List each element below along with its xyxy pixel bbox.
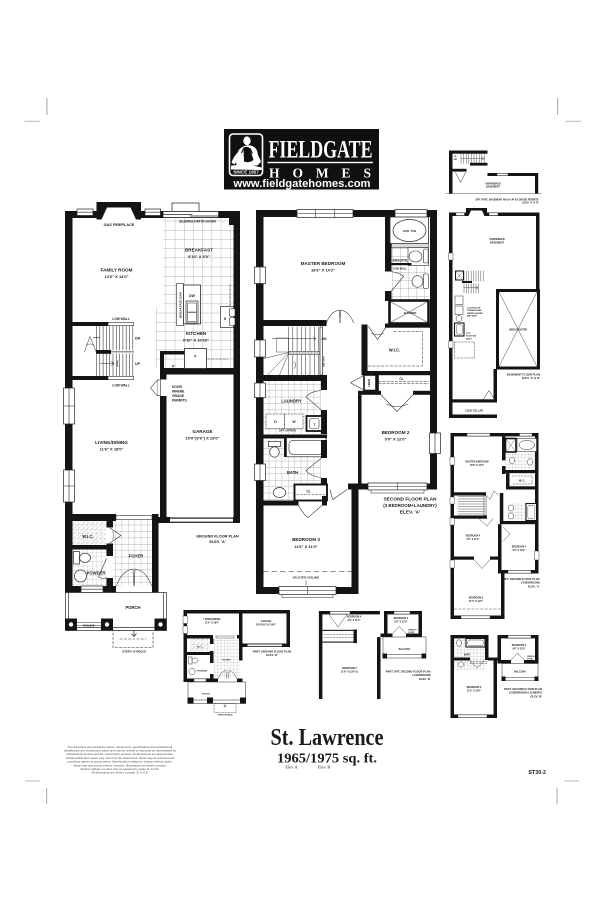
svg-text:GAS FIREPLACE: GAS FIREPLACE: [104, 223, 135, 227]
svg-text:MAY VARY: MAY VARY: [467, 315, 478, 318]
svg-text:www.fieldgatehomes.com: www.fieldgatehomes.com: [233, 178, 371, 190]
svg-text:All illustrations are Artist's: All illustrations are Artist's concept. …: [91, 771, 148, 775]
svg-text:ELEV. 'B': ELEV. 'B': [266, 653, 278, 657]
svg-text:SINCE 1957: SINCE 1957: [233, 170, 259, 175]
svg-text:BEDROOM 2: BEDROOM 2: [382, 430, 410, 435]
svg-text:PART. GROUND FLOOR PLAN: PART. GROUND FLOOR PLAN: [253, 650, 292, 654]
svg-text:W.I.C.: W.I.C.: [389, 348, 400, 353]
svg-text:SHOWER: SHOWER: [404, 311, 417, 315]
svg-text:10'0"(9'6") X 19'0": 10'0"(9'6") X 19'0": [256, 623, 276, 626]
svg-text:PORCH: PORCH: [202, 694, 210, 696]
svg-text:LINEN: LINEN: [367, 379, 371, 387]
svg-text:DOOR: DOOR: [527, 658, 533, 660]
svg-text:GRADE: GRADE: [172, 394, 185, 398]
svg-text:11'6" X 11'0": 11'6" X 11'0": [294, 544, 318, 549]
svg-text:UNEXCAVATED: UNEXCAVATED: [509, 329, 528, 332]
svg-text:ST30-2: ST30-2: [528, 770, 546, 776]
svg-text:Elev. A: Elev. A: [285, 765, 297, 770]
svg-text:STEPS IF REQ'D: STEPS IF REQ'D: [218, 715, 233, 717]
svg-text:11'6" X (13'0"±): 11'6" X (13'0"±): [341, 670, 358, 673]
svg-text:KITCHEN: KITCHEN: [186, 331, 207, 336]
svg-text:BASEMENT FLOOR PLAN: BASEMENT FLOOR PLAN: [507, 372, 540, 376]
svg-text:W.I.C.: W.I.C.: [82, 534, 93, 539]
svg-text:VAULTED CEILING: VAULTED CEILING: [293, 576, 320, 580]
svg-text:9'0" X 12'0": 9'0" X 12'0": [385, 437, 407, 442]
svg-text:FOYER: FOYER: [129, 554, 143, 559]
svg-text:9'0" X 11'0": 9'0" X 11'0": [467, 538, 480, 541]
svg-text:GROUND FLOOR PLAN: GROUND FLOOR PLAN: [196, 535, 239, 539]
svg-text:BASEMENT: BASEMENT: [490, 242, 505, 245]
svg-text:ROUGH-IN: ROUGH-IN: [466, 336, 477, 338]
svg-text:PORCH: PORCH: [125, 605, 140, 610]
svg-text:LIVING/DINING: LIVING/DINING: [95, 440, 128, 445]
svg-text:16'6" X 14'2": 16'6" X 14'2": [470, 464, 484, 467]
svg-text:OPT. SECOND FLOOR PLAN: OPT. SECOND FLOOR PLAN: [503, 577, 539, 581]
svg-text:RAILING: RAILING: [83, 624, 95, 628]
svg-text:BATH: BATH: [464, 654, 471, 657]
svg-text:STEPS IF REQ'D: STEPS IF REQ'D: [122, 650, 146, 654]
svg-text:BALCONY: BALCONY: [514, 671, 526, 674]
svg-text:CL: CL: [306, 489, 310, 493]
svg-text:SECOND FLOOR PLAN: SECOND FLOOR PLAN: [383, 497, 437, 503]
svg-text:POWDER: POWDER: [87, 571, 106, 576]
svg-text:POWDER: POWDER: [197, 671, 207, 673]
svg-text:DN: DN: [322, 337, 327, 341]
svg-text:11'6" X 13'0": 11'6" X 13'0": [467, 689, 481, 692]
svg-text:DOOR: DOOR: [409, 632, 415, 634]
svg-text:9'0" X 12'0": 9'0" X 12'0": [513, 647, 526, 650]
svg-text:11'6" X 18'0": 11'6" X 18'0": [100, 447, 124, 452]
svg-text:FIELDGATE: FIELDGATE: [269, 135, 373, 164]
svg-text:ELEV. 'A': ELEV. 'A': [209, 540, 225, 544]
svg-text:BREAKFAST BAR: BREAKFAST BAR: [179, 291, 183, 318]
svg-text:OVAL TUB: OVAL TUB: [403, 229, 417, 233]
svg-text:BEDROOM 3: BEDROOM 3: [292, 537, 320, 542]
svg-text:PART. OPT. SECOND FLOOR PLAN: PART. OPT. SECOND FLOOR PLAN: [386, 670, 431, 674]
svg-text:T: T: [314, 423, 316, 427]
svg-text:SLIDING PATIO DOOR: SLIDING PATIO DOOR: [179, 220, 216, 224]
svg-text:WATER HEATER: WATER HEATER: [467, 312, 483, 315]
svg-text:BATH: BATH: [287, 470, 298, 475]
svg-text:9'10" X 9'0": 9'10" X 9'0": [188, 254, 210, 259]
svg-text:LAUNDRY: LAUNDRY: [281, 399, 302, 404]
svg-text:ELEV. 'A': ELEV. 'A': [528, 584, 540, 588]
svg-text:GARAGE: GARAGE: [192, 429, 212, 434]
svg-text:ENSUITE: ENSUITE: [393, 259, 408, 263]
svg-text:MASTER BEDROOM: MASTER BEDROOM: [301, 261, 346, 266]
svg-text:9'10" X 10'10": 9'10" X 10'10": [183, 338, 209, 343]
svg-text:COLD CELLAR: COLD CELLAR: [465, 410, 483, 413]
svg-text:DN: DN: [135, 337, 141, 341]
svg-text:11'6" X 11'0": 11'6" X 11'0": [469, 600, 483, 603]
svg-text:BATH: BATH: [466, 337, 472, 340]
svg-text:WHERE: WHERE: [172, 390, 185, 394]
svg-text:FOYER: FOYER: [222, 660, 230, 662]
svg-text:PART. SECOND FLOOR PLAN: PART. SECOND FLOOR PLAN: [504, 687, 542, 691]
svg-text:W.I.C.: W.I.C.: [519, 481, 526, 483]
svg-text:3 PC.: 3 PC.: [466, 333, 471, 335]
svg-text:CL: CL: [399, 377, 403, 381]
svg-text:(3 BEDROOM+LAUNDRY): (3 BEDROOM+LAUNDRY): [509, 691, 542, 695]
svg-text:11'6" X 18'0": 11'6" X 18'0": [205, 621, 219, 624]
svg-text:ELEV. 'B': ELEV. 'B': [531, 694, 543, 698]
svg-text:(4 BEDROOM): (4 BEDROOM): [412, 673, 430, 677]
svg-text:ELEV. 'A' & 'B': ELEV. 'A' & 'B': [522, 202, 539, 205]
svg-text:LOW WALL: LOW WALL: [112, 384, 129, 388]
svg-text:DOOR: DOOR: [172, 385, 183, 389]
svg-text:Elev. B: Elev. B: [318, 765, 330, 770]
svg-text:UP: UP: [135, 362, 141, 366]
svg-text:12'0" X 14'0": 12'0" X 14'0": [105, 274, 129, 279]
svg-text:ELEV. 'A': ELEV. 'A': [400, 510, 421, 516]
svg-text:LOCATION OF: LOCATION OF: [467, 307, 481, 310]
svg-text:BALCONY: BALCONY: [399, 648, 411, 651]
svg-text:OPT. UPPERS: OPT. UPPERS: [279, 429, 296, 433]
svg-text:FAMILY ROOM: FAMILY ROOM: [101, 268, 133, 273]
svg-text:W.I.C.: W.I.C.: [197, 646, 203, 648]
svg-text:10'0"(9'6") X 19'0": 10'0"(9'6") X 19'0": [186, 436, 220, 441]
svg-text:LOW WALL: LOW WALL: [393, 266, 408, 270]
svg-text:BREAKFAST: BREAKFAST: [185, 248, 213, 253]
svg-text:RAILING: RAILING: [322, 357, 326, 368]
svg-text:ELEV. 'A' & 'B': ELEV. 'A' & 'B': [522, 376, 540, 380]
svg-text:DW: DW: [189, 294, 196, 298]
svg-text:16'6" X 14'2": 16'6" X 14'2": [311, 268, 335, 273]
svg-text:BASEMENT: BASEMENT: [486, 186, 501, 189]
svg-text:St. Lawrence: St. Lawrence: [271, 724, 384, 751]
svg-text:FURNACE AND: FURNACE AND: [467, 309, 482, 312]
svg-text:PERMITS: PERMITS: [172, 399, 187, 403]
svg-text:(3 BEDROOM+LAUNDRY): (3 BEDROOM+LAUNDRY): [383, 503, 437, 508]
svg-text:(4 BEDROOM): (4 BEDROOM): [521, 581, 539, 585]
svg-text:9'0" X 12'0": 9'0" X 12'0": [395, 620, 408, 623]
svg-text:9'0" X 12'0": 9'0" X 12'0": [513, 549, 526, 552]
svg-text:ELEV. 'B': ELEV. 'B': [419, 677, 431, 681]
svg-text:9'0" X 11'0": 9'0" X 11'0": [348, 619, 361, 622]
svg-text:LOW WALL: LOW WALL: [112, 317, 129, 321]
